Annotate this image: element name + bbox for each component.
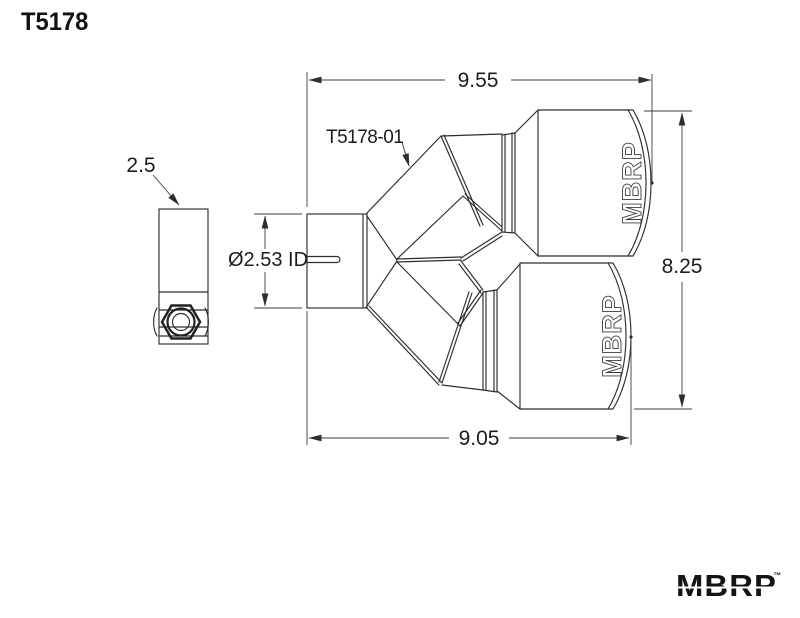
brand-logo-text: MBRP	[676, 570, 777, 601]
lower-tip: MBRP	[483, 263, 631, 409]
clamp-leader-line	[153, 175, 179, 205]
dim-clamp-width: 2.5	[126, 154, 155, 177]
part-label: T5178-01	[326, 127, 403, 148]
technical-drawing: MBRP MBRP	[0, 0, 800, 618]
y-pipe-junction	[366, 134, 502, 390]
clamp-side-view	[154, 209, 209, 344]
dim-top-width: 9.55	[458, 69, 499, 92]
inlet-pipe	[307, 214, 367, 308]
dim-overall-height: 8.25	[662, 255, 703, 278]
tip-brand-upper: MBRP	[617, 141, 647, 225]
inlet-slot	[307, 257, 340, 263]
dim-bottom-width: 9.05	[459, 427, 500, 450]
upper-tip: MBRP	[502, 110, 651, 256]
drawing-sheet: T5178	[0, 0, 800, 618]
tip-brand-lower: MBRP	[597, 294, 627, 378]
dim-inlet-id: Ø2.53 ID	[228, 249, 308, 271]
brand-logo: MBRP ™	[676, 570, 781, 601]
